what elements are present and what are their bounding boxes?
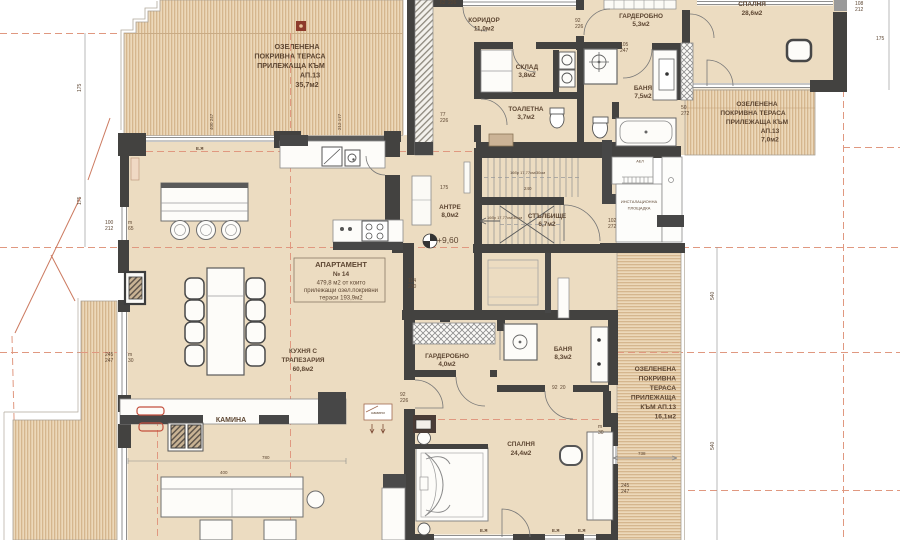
svg-text:226: 226 — [575, 24, 584, 30]
svg-text:16бр 17,77см/30см: 16бр 17,77см/30см — [510, 170, 545, 175]
svg-text:ПОКРИВНА: ПОКРИВНА — [639, 376, 677, 383]
svg-text:400: 400 — [220, 470, 228, 475]
svg-text:КУХНЯ С: КУХНЯ С — [289, 348, 317, 355]
svg-text:3,7м2: 3,7м2 — [517, 114, 535, 121]
svg-text:540: 540 — [710, 441, 716, 450]
svg-text:212 177: 212 177 — [337, 113, 342, 130]
svg-text:+9,60: +9,60 — [437, 235, 459, 245]
svg-text:16,1м2: 16,1м2 — [655, 414, 677, 421]
svg-text:ОЗЕЛЕНЕНА: ОЗЕЛЕНЕНА — [274, 42, 319, 51]
svg-text:ТОАЛЕТНА: ТОАЛЕТНА — [508, 106, 544, 113]
svg-text:272: 272 — [681, 111, 690, 117]
svg-text:28,6м2: 28,6м2 — [742, 10, 763, 17]
svg-text:КОРИДОР: КОРИДОР — [468, 17, 500, 24]
svg-text:240: 240 — [524, 186, 532, 191]
svg-text:АП.13: АП.13 — [300, 71, 320, 80]
svg-text:479,8 м2 от които: 479,8 м2 от които — [317, 281, 366, 287]
svg-text:4,0м2: 4,0м2 — [438, 361, 456, 368]
svg-text:ПЛОЩАДКА: ПЛОЩАДКА — [628, 206, 651, 211]
svg-text:226: 226 — [400, 398, 409, 404]
svg-text:20: 20 — [560, 385, 566, 391]
svg-text:7,5м2: 7,5м2 — [634, 93, 652, 100]
svg-text:Е.Я: Е.Я — [196, 146, 204, 151]
svg-text:ПРИЛЕЖАЩА КЪМ: ПРИЛЕЖАЩА КЪМ — [726, 119, 789, 126]
svg-text:АПАРТАМЕНТ: АПАРТАМЕНТ — [315, 260, 367, 269]
svg-text:СКЛАД: СКЛАД — [516, 64, 539, 71]
svg-text:175: 175 — [876, 36, 885, 42]
svg-text:№ 14: № 14 — [333, 271, 350, 278]
svg-text:30: 30 — [128, 358, 134, 364]
svg-text:СПАЛНЯ: СПАЛНЯ — [507, 441, 535, 448]
svg-text:226: 226 — [448, 0, 457, 6]
svg-text:247: 247 — [105, 358, 114, 364]
svg-text:прилежащи озел.покривни: прилежащи озел.покривни — [304, 288, 378, 294]
svg-text:АЕЛ: АЕЛ — [636, 160, 644, 164]
svg-text:ТЕРАСА: ТЕРАСА — [650, 385, 676, 392]
svg-text:175: 175 — [77, 83, 83, 92]
svg-text:БАНЯ: БАНЯ — [634, 85, 653, 92]
svg-text:камини: камини — [371, 410, 385, 415]
svg-text:ПРИЛЕЖАЩА КЪМ: ПРИЛЕЖАЩА КЪМ — [257, 61, 325, 70]
svg-text:5,3м2: 5,3м2 — [632, 21, 650, 28]
svg-text:247: 247 — [620, 48, 629, 54]
svg-text:КАМИНА: КАМИНА — [216, 417, 246, 424]
svg-text:738: 738 — [638, 451, 646, 456]
svg-text:АНТРЕ: АНТРЕ — [439, 204, 461, 211]
svg-text:8,3м2: 8,3м2 — [554, 354, 572, 361]
svg-text:65: 65 — [128, 226, 134, 232]
svg-text:Е.Я: Е.Я — [578, 528, 586, 533]
svg-text:ГАРДЕРОБНО: ГАРДЕРОБНО — [425, 353, 469, 360]
svg-text:16бр 17,77см/30см: 16бр 17,77см/30см — [487, 215, 522, 220]
svg-text:272: 272 — [608, 224, 617, 230]
svg-text:ГАРДЕРОБНО: ГАРДЕРОБНО — [619, 13, 663, 20]
svg-text:230: 230 — [408, 284, 417, 290]
svg-text:24,4м2: 24,4м2 — [511, 450, 532, 457]
svg-text:8,0м2: 8,0м2 — [441, 212, 459, 219]
svg-text:6,7м2: 6,7м2 — [538, 221, 556, 228]
svg-text:3,8м2: 3,8м2 — [518, 72, 536, 79]
svg-text:СТЪЛБИЩЕ: СТЪЛБИЩЕ — [528, 213, 567, 220]
svg-text:ТРАПЕЗАРИЯ: ТРАПЕЗАРИЯ — [281, 357, 324, 364]
svg-text:ОЗЕЛЕНЕНА: ОЗЕЛЕНЕНА — [635, 366, 677, 373]
svg-text:БАНЯ: БАНЯ — [554, 346, 573, 353]
svg-text:СПАЛНЯ: СПАЛНЯ — [738, 1, 766, 8]
svg-text:Е.Я: Е.Я — [552, 528, 560, 533]
svg-text:ПРИЛЕЖАЩА: ПРИЛЕЖАЩА — [631, 395, 676, 402]
svg-text:ИНСТАЛАЦИОННА: ИНСТАЛАЦИОННА — [621, 199, 658, 204]
svg-text:7,0м2: 7,0м2 — [761, 137, 779, 144]
svg-text:11,0м2: 11,0м2 — [474, 26, 495, 33]
svg-text:ОЗЕЛЕНЕНА: ОЗЕЛЕНЕНА — [736, 101, 778, 108]
svg-text:175: 175 — [440, 185, 449, 191]
svg-text:тераси 193,9м2: тераси 193,9м2 — [319, 296, 363, 302]
svg-text:АП.13: АП.13 — [761, 128, 780, 135]
svg-text:212: 212 — [105, 226, 114, 232]
svg-text:540: 540 — [710, 291, 716, 300]
svg-text:Е.Я: Е.Я — [480, 528, 488, 533]
svg-text:212: 212 — [855, 7, 864, 13]
svg-text:400 247: 400 247 — [209, 113, 214, 130]
svg-text:247: 247 — [621, 489, 630, 495]
svg-text:30: 30 — [598, 430, 604, 436]
svg-text:КЪМ АП.13: КЪМ АП.13 — [640, 404, 676, 411]
svg-text:226: 226 — [440, 118, 449, 124]
svg-text:175: 175 — [77, 196, 83, 205]
svg-text:92: 92 — [552, 385, 558, 391]
svg-text:35,7м2: 35,7м2 — [295, 80, 318, 89]
svg-text:ПОКРИВНА ТЕРАСА: ПОКРИВНА ТЕРАСА — [720, 110, 786, 117]
svg-text:60,8м2: 60,8м2 — [293, 366, 314, 373]
svg-text:62: 62 — [440, 0, 446, 6]
svg-text:780: 780 — [262, 455, 270, 460]
